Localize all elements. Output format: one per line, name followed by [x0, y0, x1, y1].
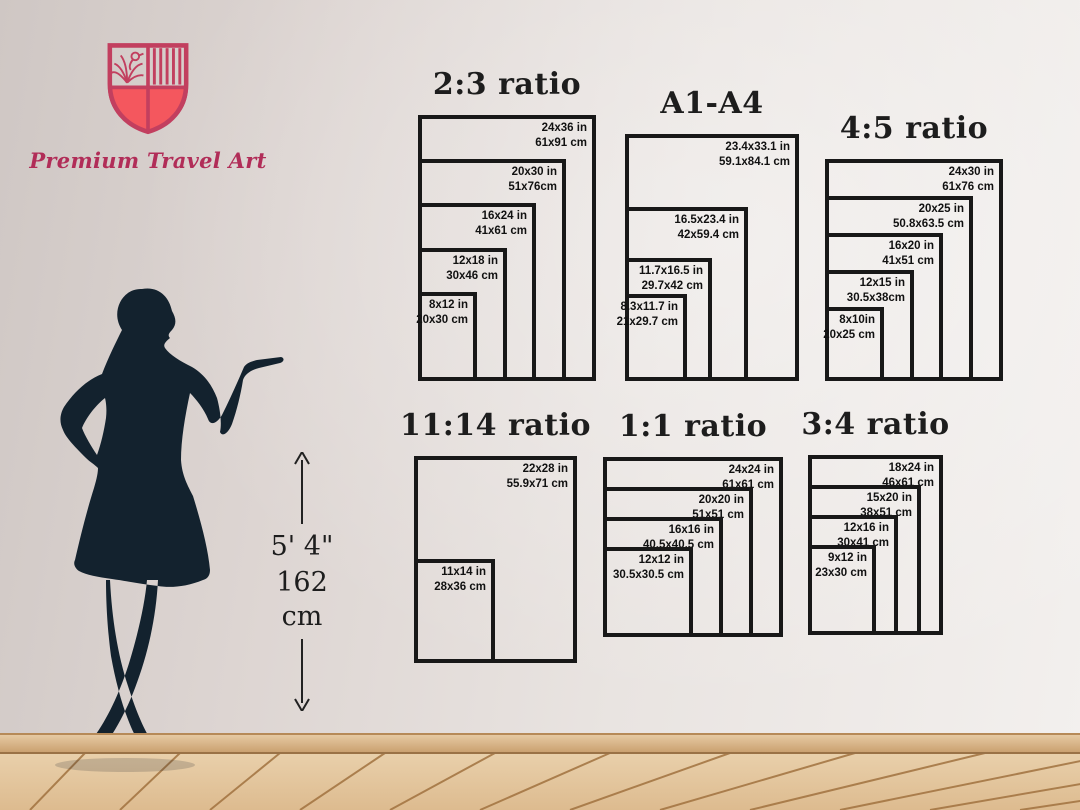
height-metric: 162 cm [262, 566, 342, 634]
brand-name: Premium Travel Art [28, 148, 268, 173]
size-label: 11.7x16.5 in29.7x42 cm [639, 264, 703, 294]
baseboard [0, 733, 1080, 753]
size-chart-3-4: 3:4 ratio18x24 in46x61 cm15x20 in38x51 c… [808, 455, 943, 635]
shield-logo-icon [100, 40, 196, 140]
size-label: 12x12 in30.5x30.5 cm [613, 553, 684, 583]
up-arrow-icon [288, 452, 316, 524]
chart-title: 3:4 ratio [748, 407, 1003, 442]
size-label: 8.3x11.7 in21x29.7 cm [617, 300, 678, 330]
palm-bird-icon [112, 53, 144, 83]
size-chart-a1-a4: A1-A423.4x33.1 in59.1x84.1 cm16.5x23.4 i… [625, 134, 799, 381]
size-label: 9x12 in23x30 cm [815, 551, 867, 581]
size-chart-11-14: 11:14 ratio22x28 in55.9x71 cm11x14 in28x… [414, 456, 577, 663]
figure-shadow [55, 758, 195, 772]
size-label: 8x12 in20x30 cm [416, 298, 468, 328]
size-box-12x12in: 12x12 in30.5x30.5 cm [603, 547, 693, 637]
size-box-9x12in: 9x12 in23x30 cm [808, 545, 876, 635]
size-box-11x14in: 11x14 in28x36 cm [414, 559, 495, 663]
woman-silhouette [58, 288, 288, 768]
height-imperial: 5' 4" [262, 530, 342, 564]
down-arrow-icon [288, 639, 316, 711]
size-chart-1-1: 1:1 ratio24x24 in61x61 cm20x20 in51x51 c… [603, 457, 783, 637]
size-label: 16.5x23.4 in42x59.4 cm [674, 213, 739, 243]
size-label: 12x18 in30x46 cm [446, 254, 498, 284]
size-label: 16x20 in41x51 cm [882, 239, 934, 269]
size-box-8x10in: 8x10in20x25 cm [825, 307, 884, 381]
size-label: 20x30 in51x76cm [508, 165, 557, 195]
stripes-quadrant [154, 48, 179, 84]
size-label: 8x10in20x25 cm [823, 313, 875, 343]
size-label: 20x25 in50.8x63.5 cm [893, 202, 964, 232]
size-label: 16x24 in41x61 cm [475, 209, 527, 239]
size-label: 24x36 in61x91 cm [535, 121, 587, 151]
size-box-8x12in: 8x12 in20x30 cm [418, 292, 477, 381]
brand: Premium Travel Art [28, 40, 268, 173]
size-chart-4-5: 4:5 ratio24x30 in61x76 cm20x25 in50.8x63… [825, 159, 1003, 381]
height-marker: 5' 4" 162 cm [262, 452, 342, 708]
size-label: 22x28 in55.9x71 cm [507, 462, 568, 492]
size-box-8.3x11.7in: 8.3x11.7 in21x29.7 cm [625, 294, 687, 381]
size-label: 24x30 in61x76 cm [942, 165, 994, 195]
poster-size-guide: Premium Travel Art 5' 4" 162 cm 2:3 rati… [0, 0, 1080, 810]
size-label: 11x14 in28x36 cm [434, 565, 486, 595]
wood-floor [0, 733, 1080, 810]
chart-title: 4:5 ratio [765, 111, 1063, 146]
size-label: 12x15 in30.5x38cm [847, 276, 905, 306]
size-chart-2-3: 2:3 ratio24x36 in61x91 cm20x30 in51x76cm… [418, 115, 596, 381]
